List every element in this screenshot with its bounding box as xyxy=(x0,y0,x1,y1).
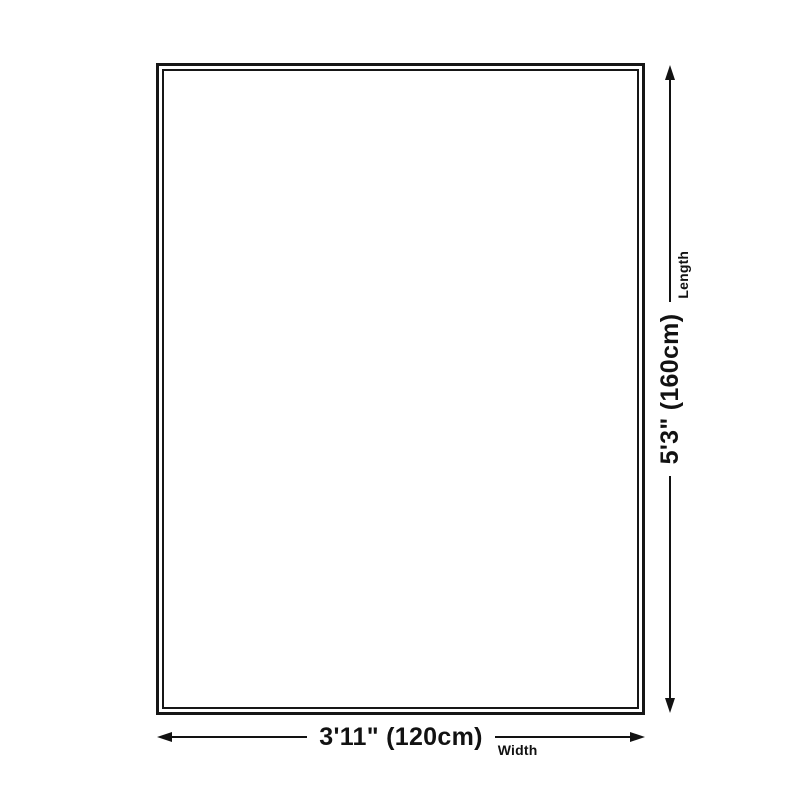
rug-inner-border xyxy=(162,69,639,709)
length-label: Length xyxy=(675,251,691,299)
width-value: 3'11" (120cm) xyxy=(319,723,482,752)
dimension-line-segment: Width xyxy=(495,736,630,739)
width-label: Width xyxy=(498,742,538,758)
length-value: 5'3" (160cm) xyxy=(656,314,685,465)
dimension-line-segment xyxy=(669,476,672,698)
width-dimension: 3'11" (120cm) Width xyxy=(157,715,645,759)
dimension-line-segment: Length xyxy=(669,80,672,302)
arrow-left-icon xyxy=(157,732,172,742)
arrow-up-icon xyxy=(665,65,675,80)
rug-outline xyxy=(156,63,645,715)
size-diagram: 5'3" (160cm) Length 3'11" (120cm) Width xyxy=(0,0,800,800)
dimension-line-segment xyxy=(172,736,307,739)
length-dimension: 5'3" (160cm) Length xyxy=(648,65,692,713)
arrow-right-icon xyxy=(630,732,645,742)
arrow-down-icon xyxy=(665,698,675,713)
